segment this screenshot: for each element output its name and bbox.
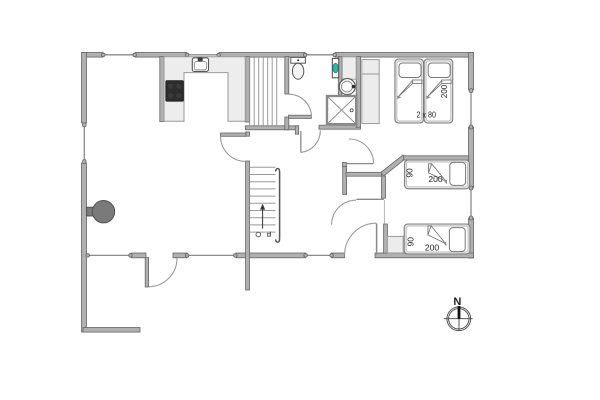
- svg-text:200: 200: [425, 243, 440, 253]
- svg-text:90: 90: [405, 168, 415, 178]
- svg-text:2 x 80: 2 x 80: [416, 109, 436, 119]
- svg-text:90: 90: [405, 237, 415, 247]
- svg-text:200: 200: [440, 84, 449, 98]
- svg-text:N: N: [453, 296, 461, 308]
- svg-text:200: 200: [428, 174, 443, 184]
